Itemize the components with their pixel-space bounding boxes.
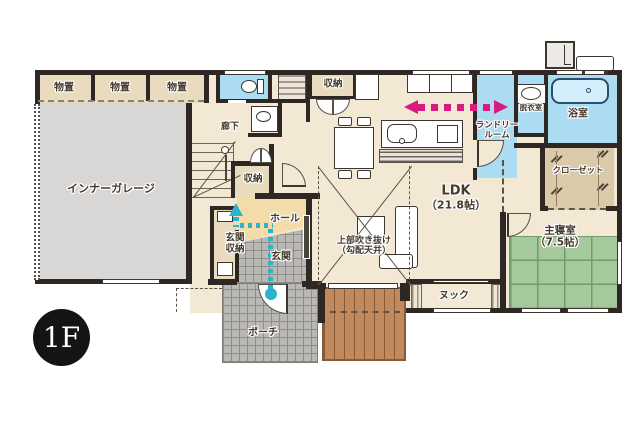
wall-bedroom-left xyxy=(500,212,506,313)
label-dressing: 脱衣室 xyxy=(520,104,543,112)
window-laundry-top xyxy=(479,70,513,75)
closet-opening-dashed xyxy=(548,208,606,210)
closet-rod-right xyxy=(598,151,599,206)
wall-laundry-left-bottom xyxy=(473,168,477,180)
entry-flow-arrowhead-up xyxy=(229,203,243,216)
toilet-icon xyxy=(241,80,257,93)
label-ldk-name: LDK xyxy=(426,185,486,200)
window-nook-top xyxy=(433,280,489,283)
label-entrance-storage: 玄関 収納 xyxy=(225,233,244,254)
floor-badge: 1F xyxy=(33,309,90,366)
entry-flow-horizontal xyxy=(240,223,273,228)
label-closet: クローゼット xyxy=(552,167,603,177)
dressing-basin xyxy=(521,87,541,100)
wall-closet-left xyxy=(540,148,545,210)
label-porch: ポーチ xyxy=(248,327,278,338)
kitchen-counter-front xyxy=(379,149,463,163)
kitchen-cooktop xyxy=(437,125,458,143)
entry-flow-stem xyxy=(233,217,239,227)
label-top-storage: 収納 xyxy=(323,80,342,91)
label-bath: 浴室 xyxy=(568,108,588,119)
label-garage: インナーガレージ xyxy=(67,183,155,195)
kitchen-back-counter xyxy=(355,74,379,100)
bathtub-drain xyxy=(586,88,591,93)
nook-bench-left xyxy=(411,284,422,309)
dining-chair-2 xyxy=(357,117,371,126)
stair-start-marker xyxy=(221,146,229,154)
wall-stair-storage-left xyxy=(231,161,235,198)
wall-closet-bottom-stub-l xyxy=(540,206,548,211)
garage-shutter xyxy=(34,104,40,280)
window-garage-bottom xyxy=(102,279,160,284)
label-storage-3: 物置 xyxy=(167,82,187,93)
wall-storage-divider-2 xyxy=(146,73,150,101)
wall-closet-bottom-stub-r xyxy=(606,206,622,211)
label-entrance: 玄関 xyxy=(271,251,291,262)
entry-flow-dot xyxy=(265,288,277,300)
wall-basin-right xyxy=(278,103,282,136)
corridor-basin xyxy=(256,111,271,122)
window-bedroom-bottom-1 xyxy=(521,308,561,313)
label-laundry: ランドリー ルーム xyxy=(476,121,519,140)
laundry-flow-arrowhead-right xyxy=(494,100,508,114)
wall-basin-bottom xyxy=(248,133,282,137)
toilet-door-gap xyxy=(228,100,246,103)
dining-chair-1 xyxy=(338,117,352,126)
tv-icon xyxy=(303,215,310,259)
toilet-tank xyxy=(257,79,264,94)
wall-stair-storage-right xyxy=(269,144,274,198)
wood-deck xyxy=(322,287,406,361)
wall-front-left xyxy=(208,279,237,285)
label-bedroom: 主寝室 （7.5帖） xyxy=(535,225,585,249)
label-laundry-line2: ルーム xyxy=(476,131,519,141)
laundry-flow-dashes xyxy=(418,104,494,111)
wall-storage-end xyxy=(204,72,209,103)
label-void-line1: 上部吹き抜け xyxy=(337,236,391,246)
laundry-flow-arrowhead-left xyxy=(404,100,418,114)
dining-table xyxy=(334,127,374,169)
wall-closet-top xyxy=(514,143,622,148)
storage-strip-sliding-rail xyxy=(38,100,204,102)
water-heater-inner xyxy=(564,45,571,65)
wall-bath-left xyxy=(544,71,548,145)
label-corridor: 廊下 xyxy=(221,122,239,132)
wall-storage-divider-1 xyxy=(91,73,95,101)
wall-entrance-storage-left xyxy=(210,206,214,282)
heat-pump-leg-2 xyxy=(604,71,607,75)
label-bedroom-name: 主寝室 xyxy=(535,225,585,237)
entrance-shelf-bottom xyxy=(217,262,233,276)
label-storage-2: 物置 xyxy=(110,82,130,93)
floor-badge-label: 1F xyxy=(43,324,80,352)
window-nook-bottom xyxy=(433,308,491,313)
wall-garage-right xyxy=(186,103,192,284)
window-toilet-top xyxy=(224,70,266,75)
bathtub-icon xyxy=(551,78,609,104)
label-void-line2: （勾配天井） xyxy=(337,246,391,256)
label-hall: ホール xyxy=(270,213,300,224)
wall-deck-left-post xyxy=(318,283,325,323)
label-ldk-size: （21.8帖） xyxy=(426,199,486,211)
stairs-run-line xyxy=(225,155,227,181)
kitchen-wall-cabinet xyxy=(407,74,473,93)
window-bedroom-bottom-2 xyxy=(567,308,609,313)
label-entrance-storage-line2: 収納 xyxy=(225,244,244,255)
label-ldk: LDK （21.8帖） xyxy=(426,185,486,212)
heat-pump-unit xyxy=(576,56,614,71)
closet-rod-left xyxy=(556,151,557,206)
cabinet-divider-2 xyxy=(451,75,452,92)
deck-center-dashed-line xyxy=(330,311,400,313)
floor-plan: 物置 物置 物置 インナーガレージ 廊下 収納 収納 ランドリー ルーム 脱衣室… xyxy=(0,0,640,427)
label-storage-1: 物置 xyxy=(54,82,74,93)
kitchen-faucet xyxy=(399,138,405,144)
wall-outer-top xyxy=(35,70,622,75)
label-bedroom-size: （7.5帖） xyxy=(535,237,585,249)
eave-dashed-h xyxy=(176,288,222,289)
label-nook: ヌック xyxy=(439,290,469,301)
pantry-louver xyxy=(278,73,306,102)
label-stair-storage: 収納 xyxy=(243,175,262,186)
wall-deck-right-post xyxy=(400,283,410,301)
eave-dashed-v xyxy=(176,288,177,312)
wall-top-storage-left xyxy=(308,71,312,99)
ldk-bedroom-opening xyxy=(502,160,504,212)
wall-dressing-bottom xyxy=(514,133,548,137)
cabinet-divider-1 xyxy=(429,75,430,92)
label-void: 上部吹き抜け （勾配天井） xyxy=(337,236,391,256)
heat-pump-leg-1 xyxy=(582,71,585,75)
window-bedroom-right xyxy=(617,241,622,285)
